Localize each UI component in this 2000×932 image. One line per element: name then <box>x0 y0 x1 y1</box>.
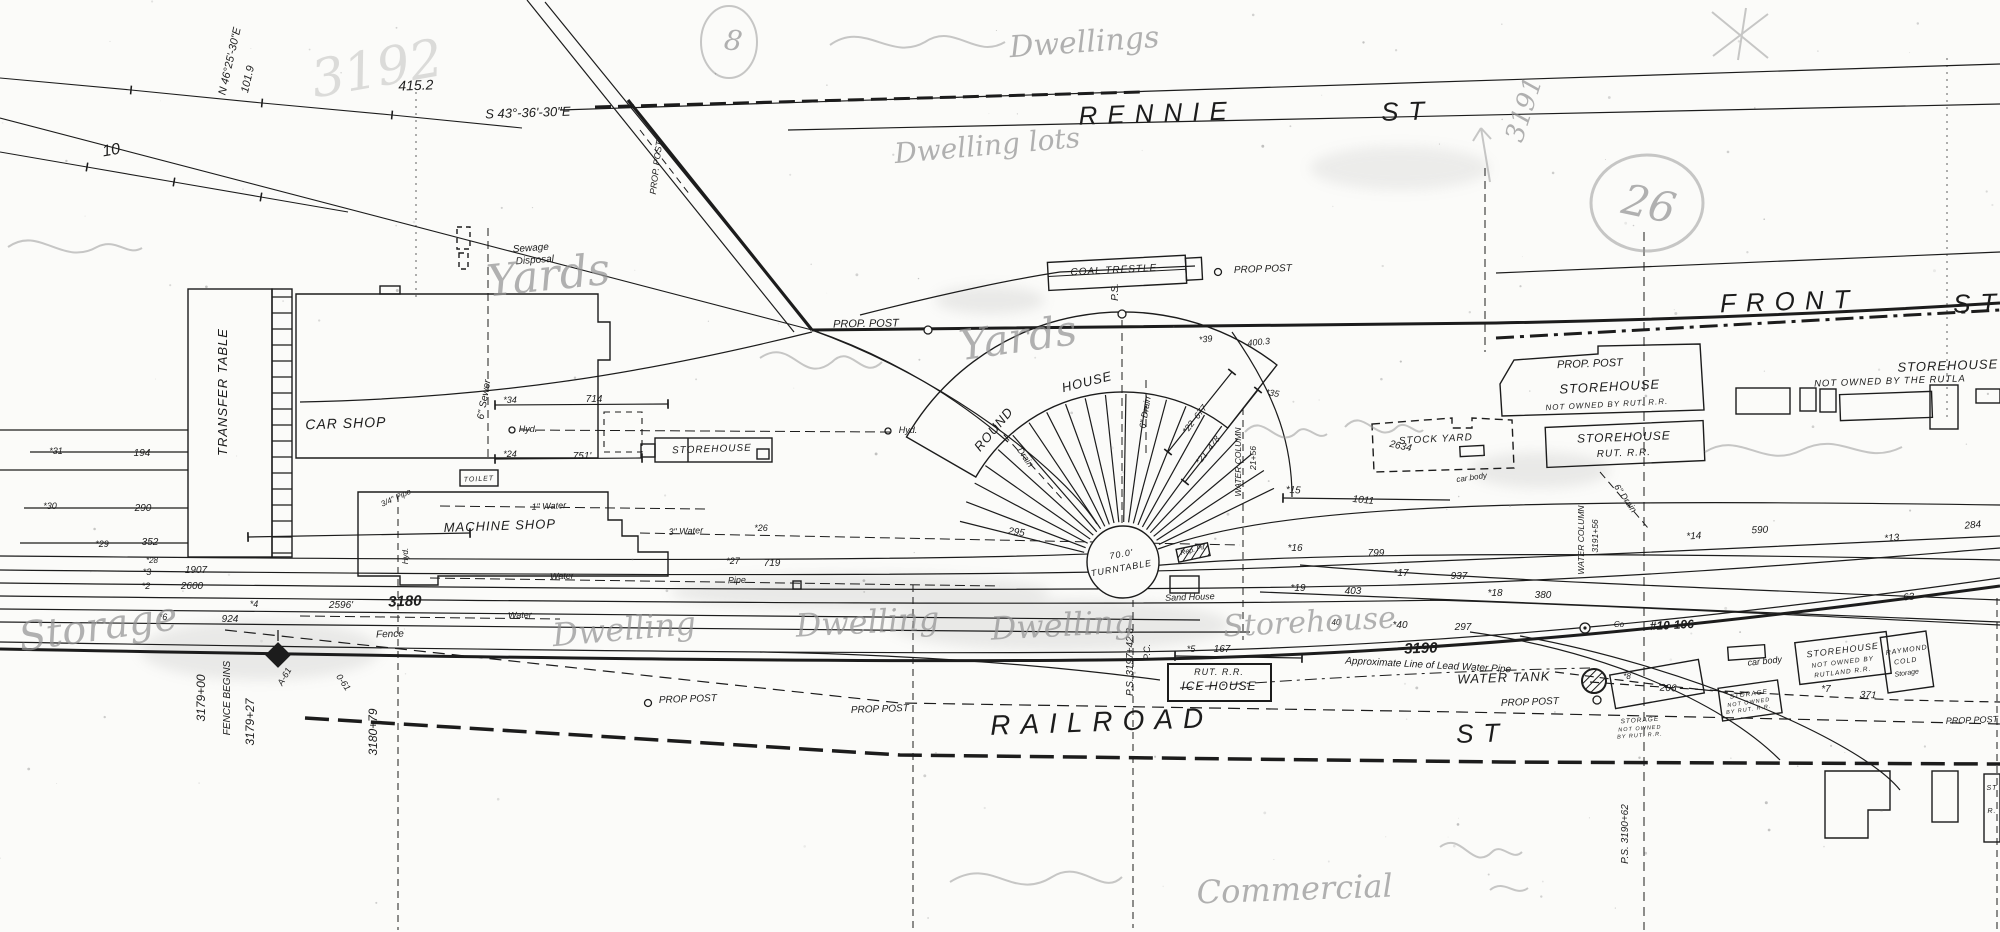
pencil-3191: 3191 <box>1500 73 1549 145</box>
bldg-sand-house: Sand House <box>1165 591 1215 603</box>
rennie-st-dim-line <box>595 92 1140 107</box>
pencil-x-mark <box>1712 8 1768 60</box>
tn-8v: 206 <box>1659 683 1678 695</box>
water-dash-1: Water <box>550 571 575 582</box>
utility-lines <box>300 58 1997 930</box>
hydrant-symbol-1 <box>509 427 515 433</box>
small-shed-1 <box>757 449 769 459</box>
prop-post-2: PROP. POST <box>833 317 900 330</box>
scanned-railroad-yard-map: N 46°25'-30"E101.9415.2S 43°-36'-30"E10S… <box>0 0 2000 932</box>
tn-19: *19 <box>1290 583 1305 594</box>
tn-284: 284 <box>1963 519 1982 532</box>
pencil-commercial: Commercial <box>1196 867 1393 912</box>
tn-21: *21 478 <box>1193 434 1222 467</box>
tn-8: *8 <box>1623 672 1631 681</box>
partial-r: R. <box>1988 808 1997 815</box>
pencil-scribble-b1 <box>950 872 1122 885</box>
prop-post-8: PROP POST <box>1234 263 1293 276</box>
tn-7v: 371 <box>1860 690 1877 702</box>
tn-14: *14 <box>1686 531 1702 543</box>
tn-22: *22 677 <box>1180 402 1209 435</box>
street-rennie: RENNIE <box>1078 95 1237 131</box>
prop-post-5: PROP POST <box>851 703 910 716</box>
sta-3180-79: 3180+79 <box>366 708 380 755</box>
drain-6-1: 6" Drain <box>1137 396 1152 429</box>
bottom-right-bldg-1 <box>1825 771 1890 838</box>
hyd-line <box>520 430 890 432</box>
tn-31v: 194 <box>134 448 151 459</box>
prop-post-6: PROP POST <box>1501 696 1560 709</box>
tn-24v: 751' <box>573 451 593 462</box>
bearing-s43: S 43°-36'-30"E <box>485 104 571 122</box>
bldg-sh-front1-2: NOT OWNED BY RUT. R.R. <box>1545 397 1668 412</box>
tn-13: *13 <box>1884 532 1900 544</box>
drain-6-2: 6" Drain <box>1612 482 1639 514</box>
hydrant-symbol-2 <box>885 428 891 434</box>
bldg-transfer-table: TRANSFER TABLE <box>215 328 230 456</box>
rh-ladder-16 <box>1150 555 2000 566</box>
tn-28: *28 <box>146 556 159 565</box>
track-10: 10 <box>101 141 122 161</box>
sand-house-building <box>1170 576 1199 593</box>
tn-30: *30 <box>43 501 57 511</box>
bldg-raymond-3: Storage <box>1894 668 1919 678</box>
tn-29v: 352 <box>142 537 159 548</box>
tn-15v: 1011 <box>1352 494 1375 507</box>
tn-3v: 1907 <box>185 565 208 576</box>
tn-30v: 290 <box>134 503 152 514</box>
tn-15: *15 <box>1285 484 1301 496</box>
prop-post-symbol-4 <box>1215 269 1222 276</box>
street-railroad-st: ST <box>1456 717 1510 749</box>
water-1in: 1" Water <box>531 500 567 512</box>
water-dash-2: Water <box>508 610 533 621</box>
tn-27v: 719 <box>764 558 781 569</box>
monument-061: 0-61 <box>334 672 353 692</box>
street-rennie-st: ST <box>1381 95 1435 127</box>
tn-295: 295 <box>1006 526 1025 539</box>
water-pipe-note: Approximate Line of Lead Water Pipe <box>1344 656 1512 676</box>
bldg-ice-house-1: RUT. R.R. <box>1194 667 1244 677</box>
front-right-bldg-5 <box>1930 385 1958 429</box>
lead-diagonal-heavy <box>628 100 812 330</box>
pencil-yards-1: Yards <box>484 244 612 308</box>
yard-track-1 <box>0 551 1152 559</box>
spur-dashed-7 <box>1590 682 2000 702</box>
water-tank-structure <box>1582 669 1606 693</box>
tn-2: *2 <box>142 581 151 591</box>
carbody-label-1: car body <box>1456 471 1489 484</box>
tn-18: *18 <box>1487 588 1502 599</box>
bldg-machine-shop: MACHINE SHOP <box>443 516 556 535</box>
bldg-house: HOUSE <box>1060 368 1113 395</box>
tn-17v: 937 <box>1451 571 1468 582</box>
drain-roundhouse: Drain <box>1015 446 1036 469</box>
tn-17: *17 <box>1393 568 1408 579</box>
fence-line-2 <box>0 152 348 212</box>
bottom-right-bldg-2 <box>1932 771 1958 822</box>
fence-label: Fence <box>376 629 405 641</box>
pencil-dwelling-2: Dwelling <box>794 599 941 645</box>
bldg-raymond-1: RAYMOND <box>1885 644 1928 657</box>
front-st-north-edge <box>1496 252 2000 273</box>
sta-ps-3190: P.S. 3190+62 <box>1620 804 1631 864</box>
ps-top: P.S. <box>1110 283 1121 301</box>
pencil-scribble-left <box>8 240 142 252</box>
storehouse-mid-porch <box>641 444 655 457</box>
prop-post-symbol-2 <box>1593 696 1601 704</box>
sewer-6: 6" Sewer <box>476 378 494 420</box>
ps-symbol <box>1118 310 1126 318</box>
bldg-sh-front1-1: STOREHOUSE <box>1559 376 1660 396</box>
bldg-round: ROUND <box>971 404 1016 454</box>
street-front-st: ST <box>1953 287 2000 319</box>
tn-14v: 590 <box>1751 525 1769 537</box>
bldg-sh-right-1: STOREHOUSE <box>1897 356 1998 375</box>
prop-post-4: PROP POST <box>659 693 718 706</box>
bldg-ice-house-2: ICE HOUSE <box>1181 679 1256 693</box>
ice-house-spur <box>760 652 1160 680</box>
water-col-1b: 21+56 <box>1248 446 1258 471</box>
bldg-car-shop: CAR SHOP <box>305 414 387 433</box>
pencil-dwelling-3: Dwelling <box>989 602 1136 648</box>
tn-19v: 403 <box>1345 586 1362 597</box>
turnout-10-196: #10-196 <box>1649 617 1694 633</box>
pencil-scribble-r2 <box>1345 420 1423 432</box>
tn-63: 63 <box>1903 592 1915 604</box>
map-labels: N 46°25'-30"E101.9415.2S 43°-36'-30"E10S… <box>16 20 2000 912</box>
front-right-bldg-3 <box>1820 389 1836 412</box>
tn-35: *35 <box>1265 387 1281 399</box>
dashed-structure <box>604 412 642 452</box>
prop-post-symbol-1 <box>924 326 932 334</box>
fence-begins: FENCE BEGINS <box>222 660 233 735</box>
transfer-table-pit <box>188 289 272 557</box>
tn-co: Co <box>1614 620 1625 629</box>
bldg-raymond-2: COLD <box>1894 656 1918 666</box>
tn-31: *31 <box>49 446 63 456</box>
front-right-bldg-6 <box>1976 389 2000 403</box>
hyd-3: Hyd. <box>401 548 410 564</box>
hyd-2: Hyd. <box>899 425 918 435</box>
bearing-n46-dist: 101.9 <box>239 65 257 95</box>
water-col-1a: WATER COLUMN <box>1233 427 1243 497</box>
water-1in-line <box>440 506 705 509</box>
pencil-storehouse: Storehouse <box>1222 601 1396 645</box>
tn-26: *26 <box>754 523 768 533</box>
pencil-scribble-b2 <box>1440 843 1528 891</box>
pencil-8: 8 <box>722 23 744 58</box>
tn-16: *16 <box>1287 543 1302 554</box>
prop-post-symbol-3 <box>645 700 652 707</box>
tn-4: *4 <box>250 599 259 609</box>
bldg-sh-front2-2: RUT. R.R. <box>1597 447 1652 460</box>
bldg-coal-trestle: COAL TRESTLE <box>1070 263 1157 279</box>
pipe-dash: Pipe <box>728 575 746 586</box>
front-right-bldg-1 <box>1736 388 1790 414</box>
sta-pc: P.C. <box>1142 644 1152 660</box>
pencil-dwelling-1: Dwelling <box>550 604 698 654</box>
rennie-st-north-edge <box>560 64 2000 110</box>
tn-39: *39 <box>1198 333 1212 344</box>
sta-3179-27: 3179+27 <box>243 697 257 745</box>
tn-5v: 167 <box>1214 644 1231 655</box>
pipe-34: 3/4" Pipe <box>379 487 412 509</box>
pencil-scribble-r1 <box>1245 425 1327 437</box>
tn-18v: 380 <box>1535 590 1552 601</box>
prop-post-7: PROP POST <box>1946 714 2000 726</box>
bldg-toilet: TOILET <box>464 475 495 484</box>
sewage-disposal-structure-2 <box>459 253 468 269</box>
tn-24: *24 <box>503 449 517 459</box>
hyd-1: Hyd. <box>519 424 538 434</box>
front-right-bldg-2 <box>1800 388 1816 411</box>
front-right-bldg-4 <box>1840 391 1933 420</box>
tn-40v: 297 <box>1454 622 1472 633</box>
tn-16v: 799 <box>1368 548 1385 559</box>
machine-shop-building <box>358 492 668 585</box>
bldg-storehouse-mid: STOREHOUSE <box>672 443 752 457</box>
sta-3180: 3180 <box>388 592 423 610</box>
pencil-yards-2: Yards <box>956 305 1080 370</box>
tn-29: *29 <box>95 539 109 549</box>
tn-27: *27 <box>726 556 741 566</box>
car-shop-building <box>296 294 610 458</box>
bldg-storage-sm2-1: STORAGE <box>1620 716 1659 726</box>
dim-line-714 <box>495 404 668 405</box>
partial-st: ST <box>1987 785 1998 792</box>
street-front: FRONT <box>1719 284 1860 319</box>
map-canvas: N 46°25'-30"E101.9415.2S 43°-36'-30"E10S… <box>0 0 2000 932</box>
transfer-table-rungs <box>272 297 292 553</box>
tn-5: *5 <box>1187 644 1197 654</box>
water-column-symbol-dot <box>1583 626 1586 629</box>
tn-3: *3 <box>143 567 152 577</box>
street-railroad: RAILROAD <box>990 702 1214 741</box>
sta-3190: 3190 <box>1404 639 1439 657</box>
pencil-3192: 3192 <box>307 28 448 110</box>
tn-6v: 924 <box>222 614 239 625</box>
bldg-sh-right-2: NOT OWNED BY THE RUTLA <box>1814 373 1966 389</box>
tn-34v: 714 <box>586 394 603 405</box>
pencil-dwelling-lots: Dwelling lots <box>892 121 1081 170</box>
prop-post-3: PROP. POST <box>1557 357 1624 371</box>
tn-39v: 400.3 <box>1247 336 1270 348</box>
pencil-scribble-r3 <box>1705 444 1902 456</box>
pencil-scribble-top <box>830 36 1005 48</box>
water-col-2a: WATER COLUMN <box>1576 505 1586 575</box>
pencil-dwellings-top: Dwellings <box>1007 20 1160 65</box>
tn-34: *34 <box>503 395 517 405</box>
carbody-1 <box>1460 445 1484 456</box>
tn-7: *7 <box>1821 684 1831 695</box>
boundary-diagonal <box>0 118 812 330</box>
tn-4v: 2596' <box>328 600 354 611</box>
fence-lines <box>0 78 812 330</box>
carbody-label-2: car body <box>1747 654 1783 668</box>
water-col-2b: 3191+56 <box>1590 519 1600 553</box>
buildings <box>188 227 2000 842</box>
carshop-lead-curve <box>300 332 812 402</box>
sta-3179-00: 3179+00 <box>194 674 208 721</box>
pencil-scribble-yard <box>760 352 882 368</box>
bldg-sh-front2-1: STOREHOUSE <box>1577 428 1671 445</box>
tn-2v: 2600 <box>180 581 204 592</box>
prop-line-short <box>640 130 690 195</box>
water-3in: 3" Water <box>668 525 704 537</box>
